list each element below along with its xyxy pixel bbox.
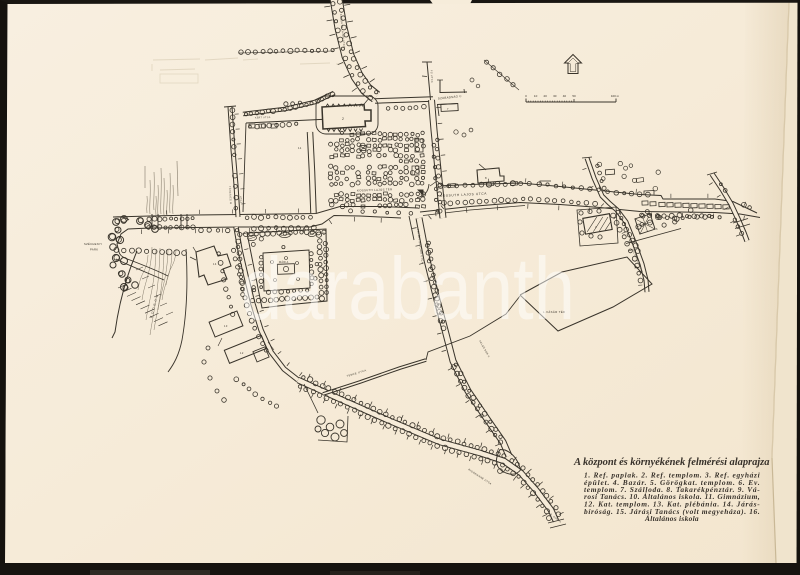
svg-text:UTCA: UTCA xyxy=(239,196,242,204)
svg-text:50: 50 xyxy=(572,94,576,98)
svg-text:13: 13 xyxy=(224,324,228,328)
svg-text:100 m: 100 m xyxy=(611,94,620,98)
svg-text:6: 6 xyxy=(656,227,658,231)
svg-text:4: 4 xyxy=(595,225,597,229)
svg-text:2: 2 xyxy=(342,117,344,121)
svg-text:Általános iskola: Általános iskola xyxy=(644,513,699,523)
svg-text:20: 20 xyxy=(544,94,548,98)
svg-text:KERT UTCA: KERT UTCA xyxy=(255,116,271,120)
svg-text:8: 8 xyxy=(485,176,487,180)
svg-text:PARK: PARK xyxy=(90,248,98,252)
svg-text:30: 30 xyxy=(553,94,557,98)
svg-text:A központ és környékének felmé: A központ és környékének felmérési alapr… xyxy=(573,457,770,468)
svg-text:14: 14 xyxy=(213,262,217,266)
svg-text:10: 10 xyxy=(534,94,538,98)
svg-text:12: 12 xyxy=(240,351,244,355)
svg-text:40: 40 xyxy=(563,94,567,98)
svg-text:darabanth: darabanth xyxy=(241,239,575,338)
svg-text:7: 7 xyxy=(447,107,449,111)
svg-text:11: 11 xyxy=(298,146,302,150)
